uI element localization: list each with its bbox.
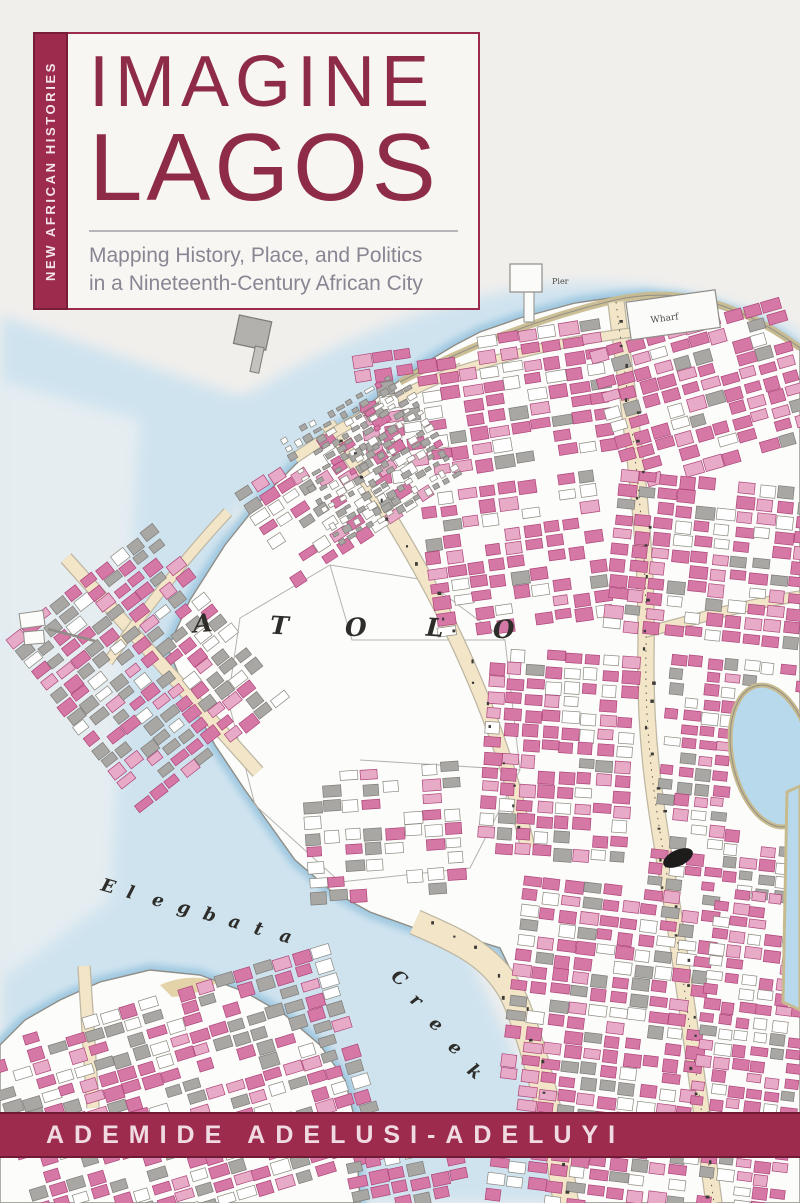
author-banner: ADEMIDE ADELUSI-ADELUYI <box>0 1112 800 1158</box>
book-title-line1: IMAGINE <box>89 46 466 118</box>
book-cover: { "cover": { "series_label": "NEW AFRICA… <box>0 0 800 1203</box>
series-strip: NEW AFRICAN HISTORIES <box>33 32 68 310</box>
svg-text:O: O <box>344 612 367 642</box>
book-title-line2: LAGOS <box>89 120 466 216</box>
svg-text:L: L <box>424 612 445 642</box>
subtitle-line1: Mapping History, Place, and Politics <box>89 242 466 270</box>
pier-label: Pier <box>552 277 569 286</box>
book-subtitle: Mapping History, Place, and Politics in … <box>89 242 466 298</box>
svg-text:O: O <box>492 614 515 644</box>
series-label: NEW AFRICAN HISTORIES <box>43 61 58 281</box>
right-edge-water <box>783 786 800 1010</box>
author-name: ADEMIDE ADELUSI-ADELUYI <box>46 1121 625 1150</box>
title-panel: IMAGINE LAGOS Mapping History, Place, an… <box>68 32 480 310</box>
title-block: NEW AFRICAN HISTORIES IMAGINE LAGOS Mapp… <box>33 32 480 310</box>
title-divider <box>89 230 458 232</box>
svg-text:A: A <box>190 608 214 639</box>
subtitle-line2: in a Nineteenth-Century African City <box>89 270 466 298</box>
